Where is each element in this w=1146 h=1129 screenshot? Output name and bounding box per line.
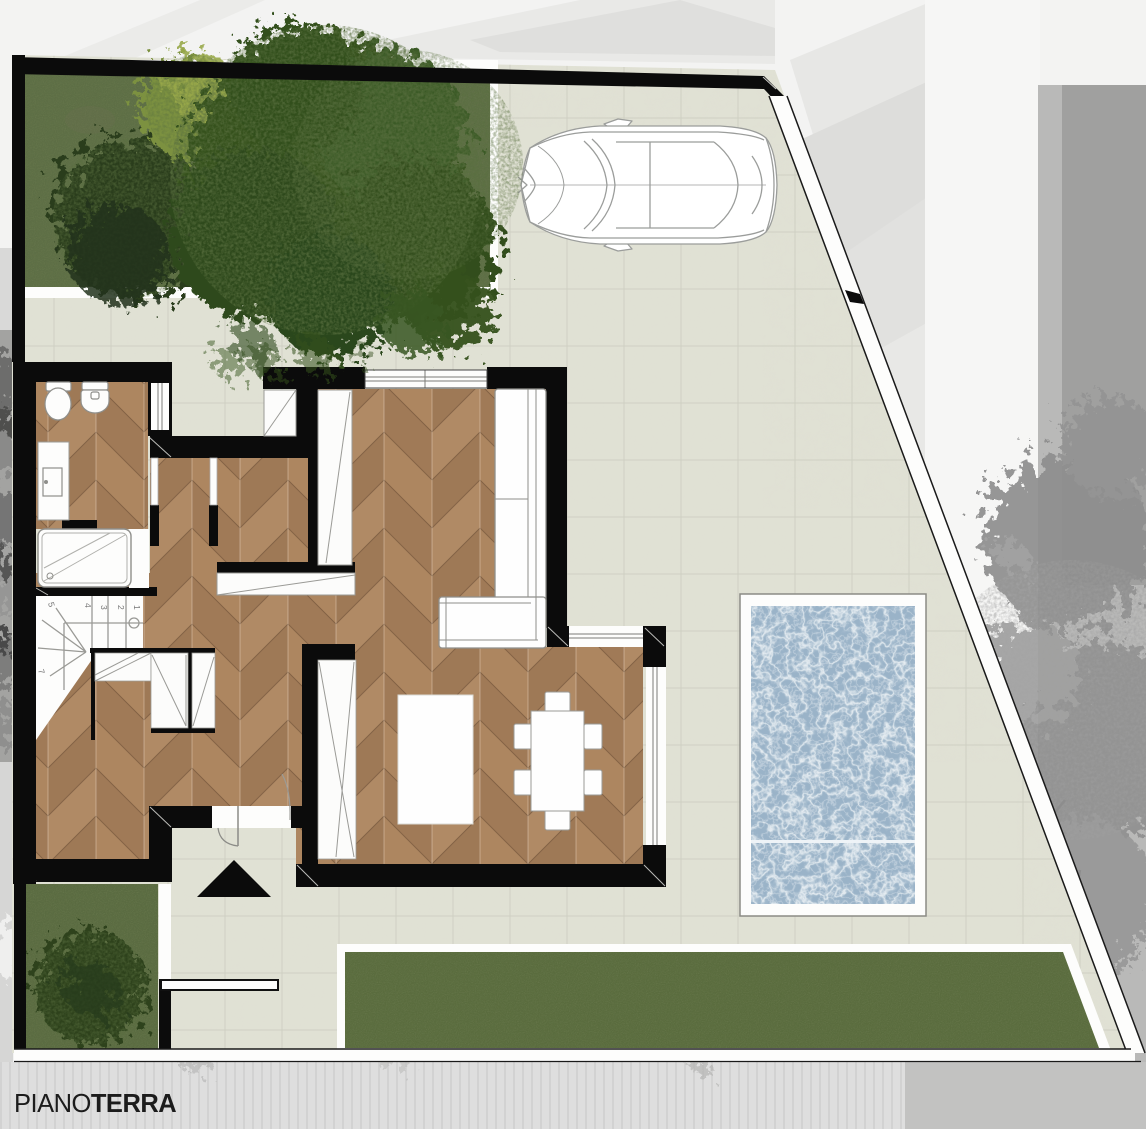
svg-text:4: 4 xyxy=(83,603,93,608)
svg-text:3: 3 xyxy=(99,605,109,610)
svg-text:PIANOTERRA: PIANOTERRA xyxy=(14,1090,176,1118)
svg-text:1: 1 xyxy=(132,605,142,610)
svg-text:2: 2 xyxy=(116,605,126,610)
